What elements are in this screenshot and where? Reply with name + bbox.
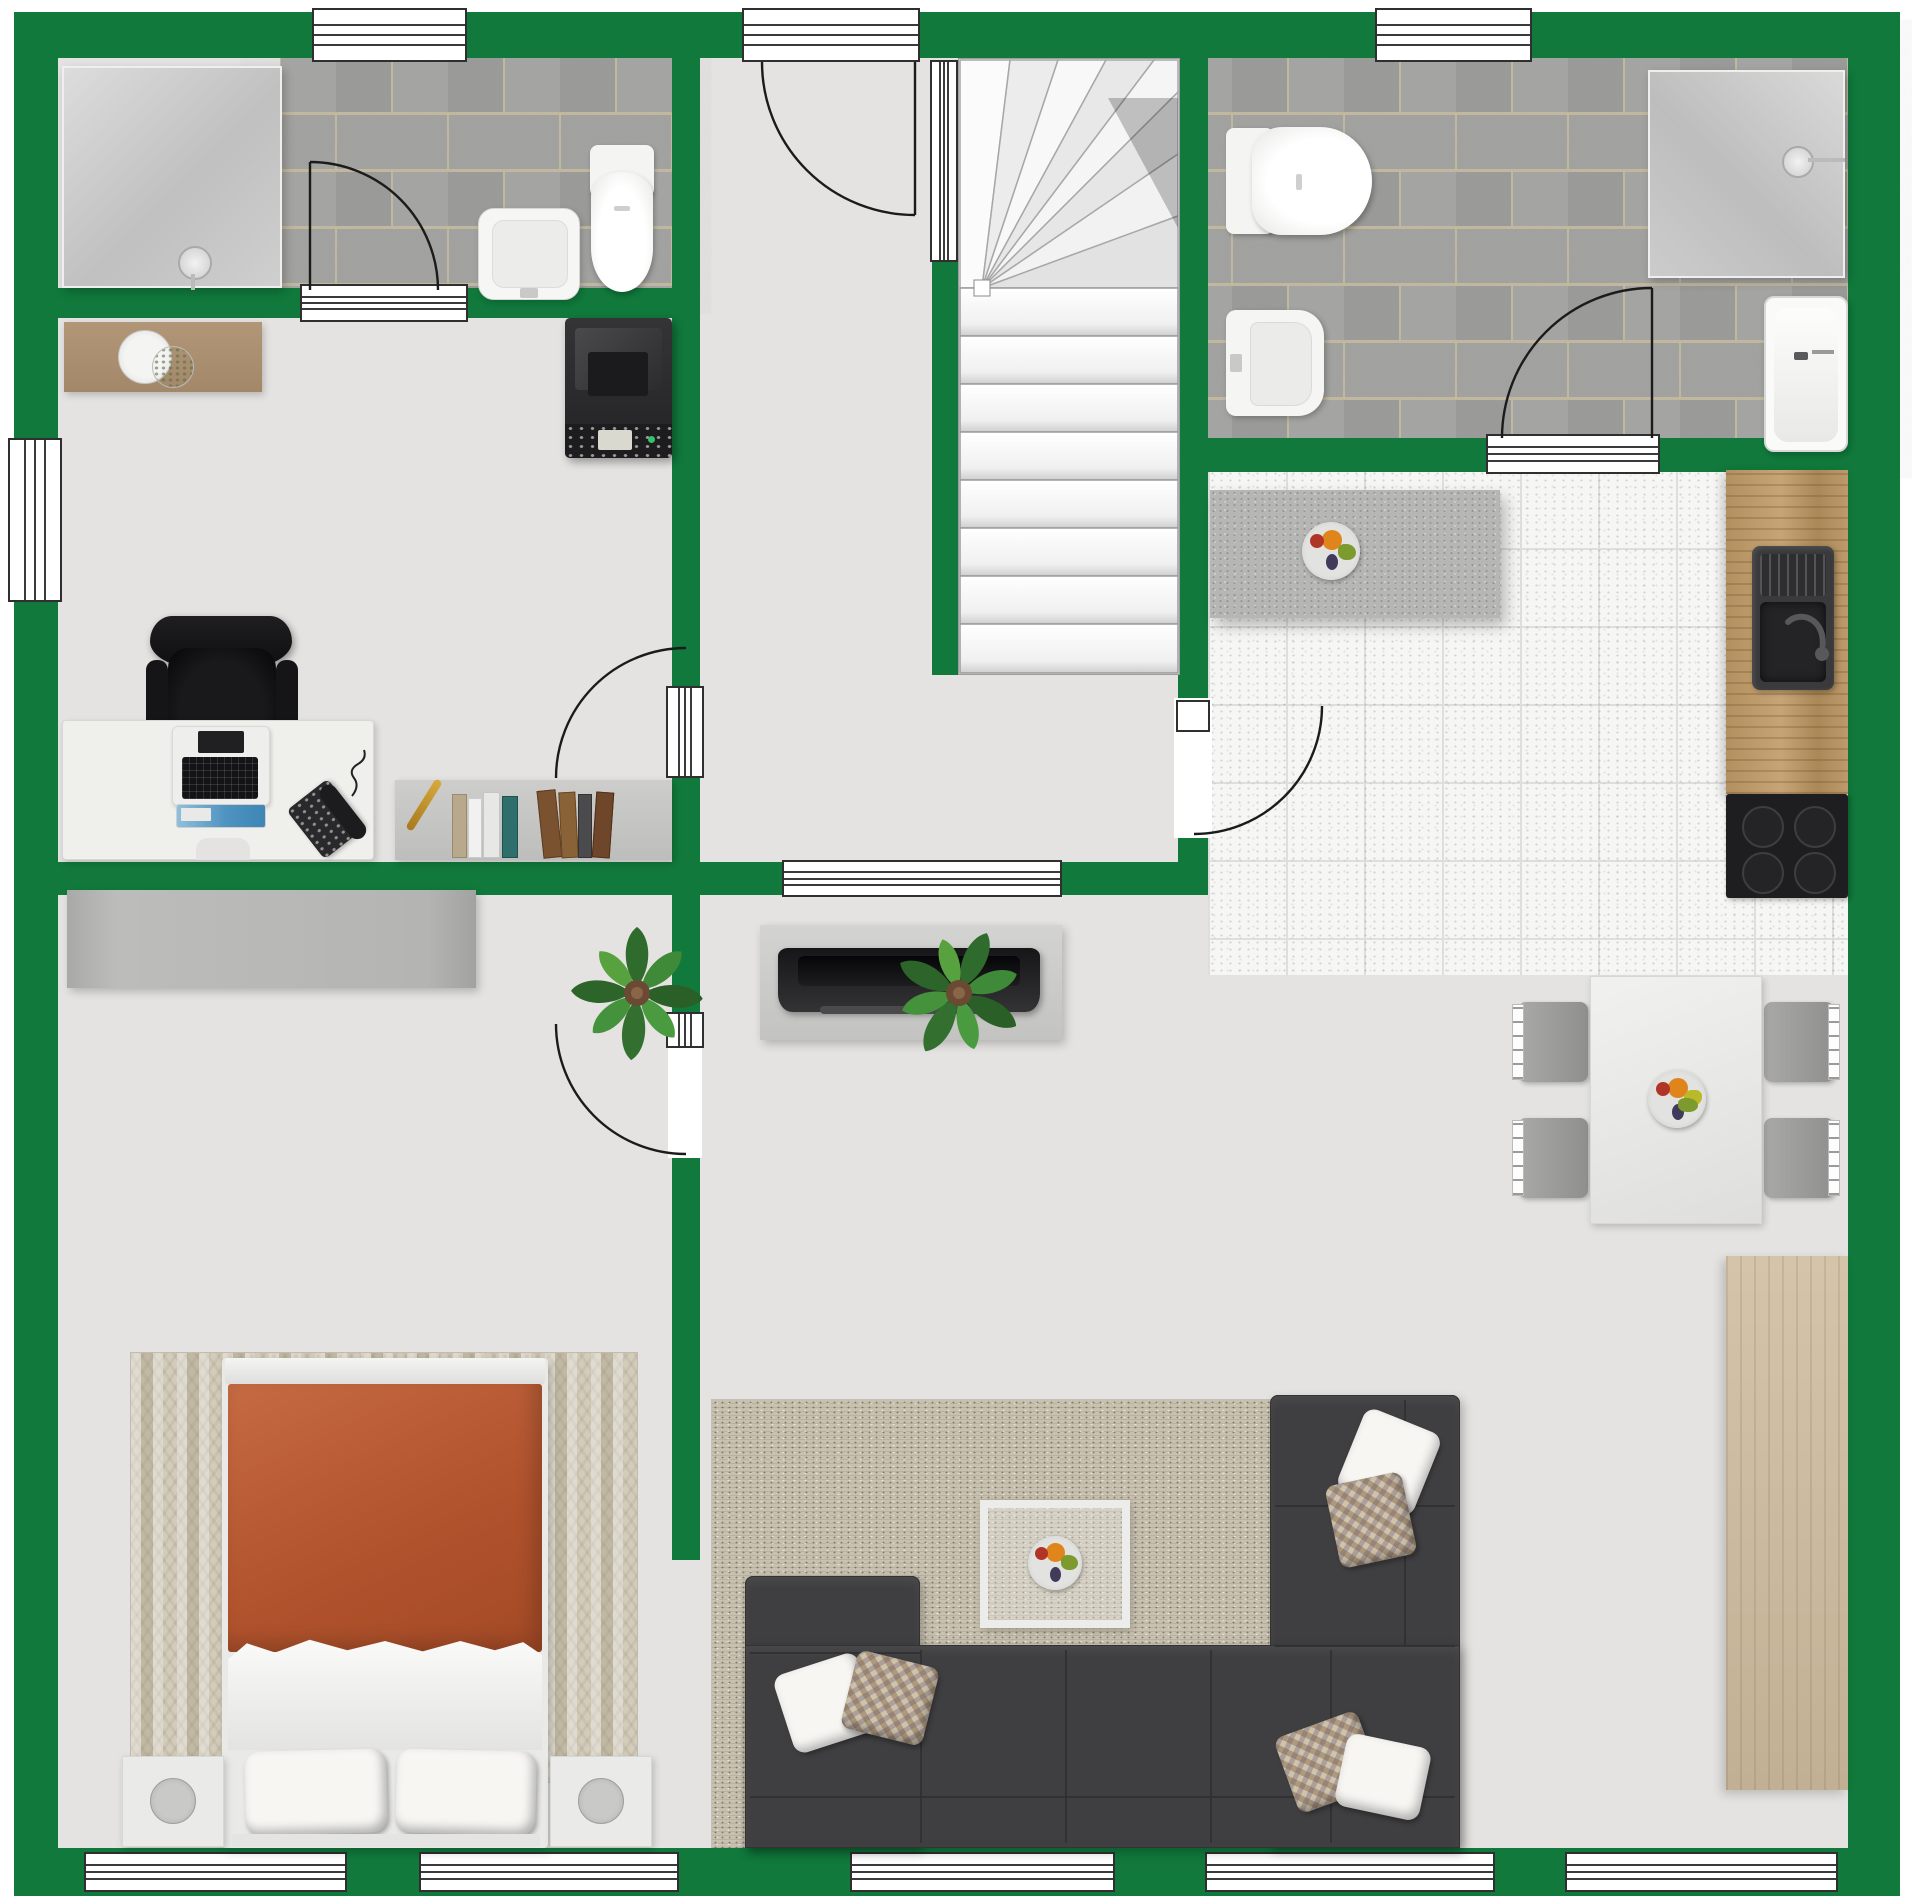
washbasin-faucet (520, 288, 538, 298)
shower-bathroom2 (1648, 70, 1845, 278)
monstera-plant-left (566, 922, 708, 1064)
door-threshold-office (666, 686, 704, 778)
door-hinge-kitchen (1176, 700, 1210, 732)
fruit-greens (1061, 1555, 1078, 1570)
printer-power-led (648, 436, 655, 443)
kitchen-sink-basin (1760, 602, 1826, 682)
bed-pillow-left (244, 1748, 388, 1836)
window-top-bathroom2 (1375, 8, 1532, 62)
toilet-bathroom2-buttons (1296, 174, 1302, 190)
bed-duvet (228, 1384, 542, 1652)
dining-chair-4-rail (1828, 1120, 1840, 1196)
book-3 (483, 792, 500, 858)
dining-chair-1-rail (1512, 1004, 1524, 1080)
window-top-bathroom1 (312, 8, 467, 62)
dining-chair-2-rail (1512, 1120, 1524, 1196)
desk-cutout (196, 838, 250, 860)
bidet-bowl (1250, 322, 1312, 406)
monstera-plant-right (888, 922, 1030, 1064)
laptop-dock (198, 731, 244, 753)
burner-4 (1794, 852, 1836, 894)
toilet-bathroom1-bowl (591, 172, 653, 292)
burner-3 (1742, 852, 1784, 894)
winder-staircase (958, 58, 1180, 675)
lamp-right (578, 1778, 624, 1824)
entry-door-threshold (742, 8, 920, 62)
sofa-seam-3 (1210, 1650, 1212, 1843)
living-wood-sideboard (1726, 1256, 1848, 1790)
bathtub-handle (1812, 350, 1834, 354)
fruit-greens (1678, 1098, 1698, 1112)
fruit-bowl-dining (1648, 1070, 1706, 1128)
shower-bathroom1 (62, 66, 282, 288)
window-bottom-2 (419, 1852, 679, 1892)
book-6 (558, 792, 578, 859)
fruit-plate-coffee-table (1028, 1536, 1082, 1590)
burner-1 (1742, 806, 1784, 848)
window-bottom-1 (84, 1852, 347, 1892)
toilet-bathroom1-buttons (614, 206, 630, 211)
washbasin-bowl (492, 220, 568, 288)
lamp-left (150, 1778, 196, 1824)
fruit-apple (1035, 1547, 1048, 1560)
book-1 (452, 794, 467, 858)
fruit-grapes (1326, 554, 1338, 570)
floor-plan-canvas (0, 0, 1920, 1903)
dining-chair-3-rail (1828, 1004, 1840, 1080)
toilet-bathroom2-bowl (1252, 127, 1372, 235)
bed-foot-band (232, 1834, 540, 1847)
sofa-right-seam-2 (1275, 1645, 1455, 1647)
shower-head-bathroom2 (1782, 146, 1814, 178)
fruit-greens (1338, 544, 1356, 560)
shower-stem-bathroom1 (191, 274, 195, 290)
sofa-seam-2 (1065, 1650, 1067, 1843)
door-threshold-bathroom2 (1486, 434, 1660, 474)
decor-plate-small (152, 346, 194, 388)
book-2 (468, 798, 482, 858)
window-stairs-sidelight (930, 60, 958, 262)
bed-headboard (225, 1358, 545, 1384)
dining-chair-2 (1518, 1118, 1588, 1198)
book-7 (578, 794, 592, 858)
burner-2 (1794, 806, 1836, 848)
kitchen-sink-drainboard (1760, 554, 1826, 596)
bathtub-faucet (1794, 352, 1808, 360)
window-bottom-5 (1565, 1852, 1838, 1892)
outer-wall-left (14, 12, 58, 1896)
fruit-apple (1656, 1082, 1670, 1096)
shower-arm-bathroom2 (1808, 158, 1845, 162)
fruit-bowl-island (1302, 522, 1360, 580)
dining-chair-1 (1518, 1002, 1588, 1082)
bed-pillow-right (395, 1748, 537, 1836)
outer-wall-right (1848, 12, 1900, 1896)
dining-chair-3 (1764, 1002, 1834, 1082)
window-interior-tv-wall (782, 860, 1062, 897)
printer-display (598, 430, 632, 450)
wall-stairs-left (932, 258, 958, 675)
book-4 (502, 796, 518, 858)
printer-tray (588, 352, 648, 396)
window-left-office (8, 438, 62, 602)
laptop-keyboard (182, 757, 258, 799)
tablet-screen-content (181, 808, 211, 821)
window-bottom-3 (850, 1852, 1115, 1892)
outer-wall-top (14, 12, 1900, 58)
fruit-apple (1310, 534, 1324, 548)
wall-vertical-center (672, 58, 700, 1560)
wardrobe (67, 890, 476, 988)
shower-head-bathroom1 (178, 246, 212, 280)
bathtub-basin (1774, 308, 1838, 442)
bidet-faucet (1230, 354, 1242, 372)
door-threshold-bathroom1 (300, 284, 468, 322)
window-bottom-4 (1205, 1852, 1495, 1892)
dining-chair-4 (1764, 1118, 1834, 1198)
fruit-grapes (1050, 1567, 1061, 1582)
sofa-left-seam (750, 1652, 920, 1654)
